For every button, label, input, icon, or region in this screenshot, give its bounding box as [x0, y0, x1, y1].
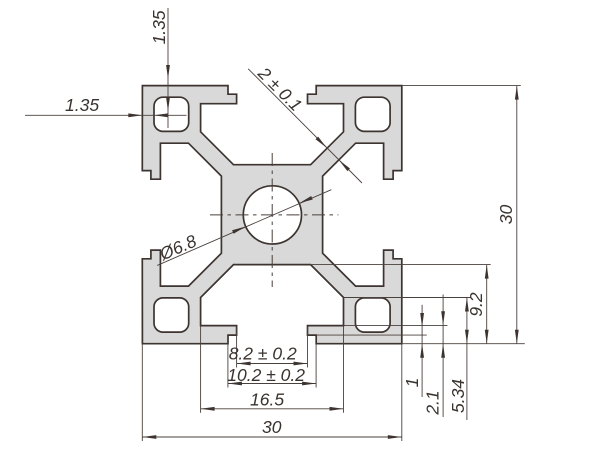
- svg-text:30: 30: [262, 417, 282, 437]
- svg-text:5.34: 5.34: [448, 379, 468, 413]
- svg-text:1.35: 1.35: [149, 10, 169, 44]
- svg-text:30: 30: [496, 205, 516, 225]
- svg-text:9.2: 9.2: [466, 292, 486, 317]
- svg-text:2.1: 2.1: [423, 390, 443, 415]
- svg-text:8.2 ± 0.2: 8.2 ± 0.2: [229, 344, 297, 364]
- svg-text:1.35: 1.35: [65, 95, 99, 115]
- svg-text:1: 1: [402, 378, 422, 388]
- svg-text:10.2 ± 0.2: 10.2 ± 0.2: [227, 365, 305, 385]
- svg-text:16.5: 16.5: [250, 390, 284, 410]
